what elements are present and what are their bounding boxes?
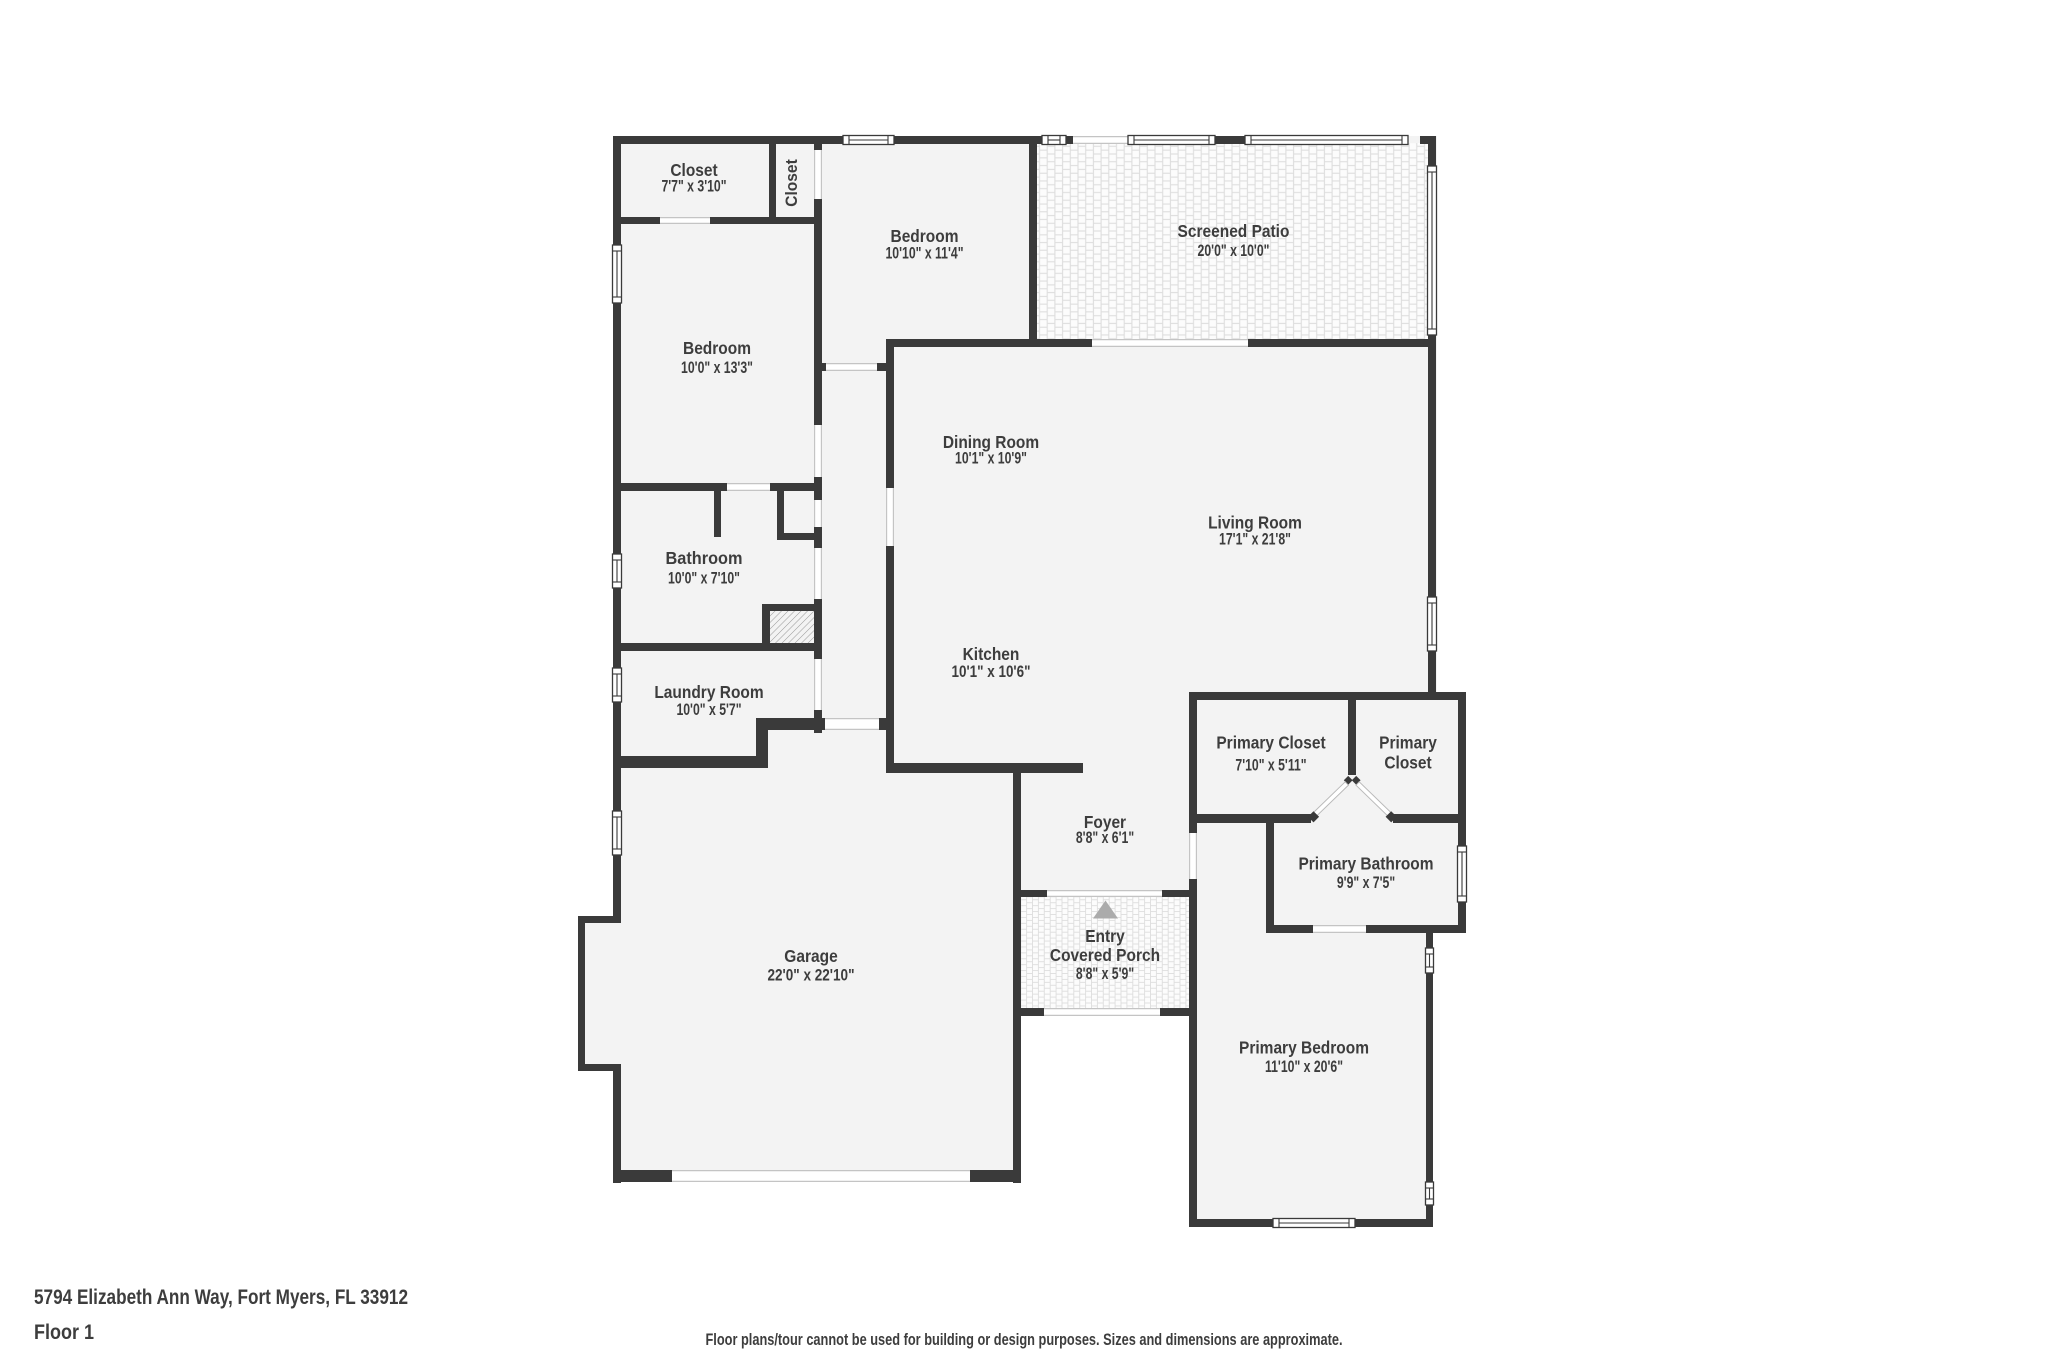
svg-text:Entry: Entry (1085, 926, 1125, 946)
svg-text:10'1" x 10'9": 10'1" x 10'9" (955, 449, 1027, 468)
svg-text:Primary: Primary (1379, 733, 1437, 753)
svg-text:Bedroom: Bedroom (683, 338, 751, 358)
svg-text:Primary Bedroom: Primary Bedroom (1239, 1038, 1369, 1058)
svg-text:Laundry Room: Laundry Room (654, 682, 763, 702)
svg-text:Floor 1: Floor 1 (34, 1320, 94, 1344)
svg-text:5794 Elizabeth Ann Way, Fort M: 5794 Elizabeth Ann Way, Fort Myers, FL 3… (34, 1285, 408, 1309)
svg-text:Closet: Closet (1384, 753, 1431, 773)
svg-text:10'0" x 13'3": 10'0" x 13'3" (681, 358, 753, 377)
svg-text:Garage: Garage (784, 946, 838, 966)
svg-text:10'0" x 5'7": 10'0" x 5'7" (676, 700, 741, 719)
svg-text:8'8" x 5'9": 8'8" x 5'9" (1076, 964, 1134, 983)
svg-text:Primary Bathroom: Primary Bathroom (1298, 854, 1433, 874)
svg-text:Closet: Closet (782, 159, 801, 207)
svg-text:11'10" x 20'6": 11'10" x 20'6" (1265, 1057, 1343, 1076)
svg-text:10'1" x 10'6": 10'1" x 10'6" (952, 662, 1031, 681)
svg-text:Primary Closet: Primary Closet (1216, 733, 1325, 753)
svg-text:9'9" x 7'5": 9'9" x 7'5" (1337, 873, 1395, 892)
svg-text:20'0" x 10'0": 20'0" x 10'0" (1198, 241, 1270, 260)
svg-text:17'1" x 21'8": 17'1" x 21'8" (1219, 530, 1291, 549)
svg-text:Kitchen: Kitchen (963, 644, 1020, 664)
svg-text:10'0" x 7'10": 10'0" x 7'10" (668, 569, 740, 588)
svg-text:22'0" x 22'10": 22'0" x 22'10" (768, 966, 855, 985)
svg-text:7'10" x 5'11": 7'10" x 5'11" (1235, 755, 1306, 774)
svg-text:Bathroom: Bathroom (666, 548, 743, 568)
svg-text:8'8" x 6'1": 8'8" x 6'1" (1076, 828, 1134, 847)
svg-text:Covered Porch: Covered Porch (1050, 945, 1160, 965)
svg-text:Floor plans/tour cannot be use: Floor plans/tour cannot be used for buil… (706, 1330, 1343, 1349)
svg-text:Screened Patio: Screened Patio (1178, 221, 1290, 241)
svg-text:7'7" x 3'10": 7'7" x 3'10" (661, 177, 726, 196)
svg-text:10'10" x 11'4": 10'10" x 11'4" (886, 244, 964, 263)
